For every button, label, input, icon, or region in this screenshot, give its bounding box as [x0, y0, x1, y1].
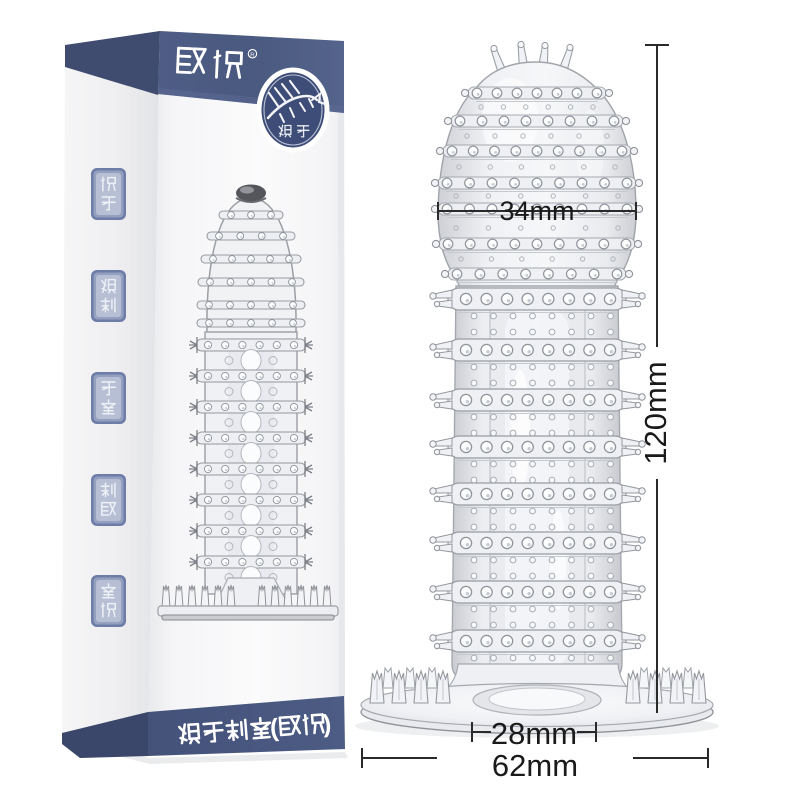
- svg-text:62mm: 62mm: [492, 748, 578, 783]
- svg-text:34mm: 34mm: [499, 196, 574, 226]
- svg-text:120mm: 120mm: [638, 361, 673, 464]
- svg-text:28mm: 28mm: [491, 716, 577, 751]
